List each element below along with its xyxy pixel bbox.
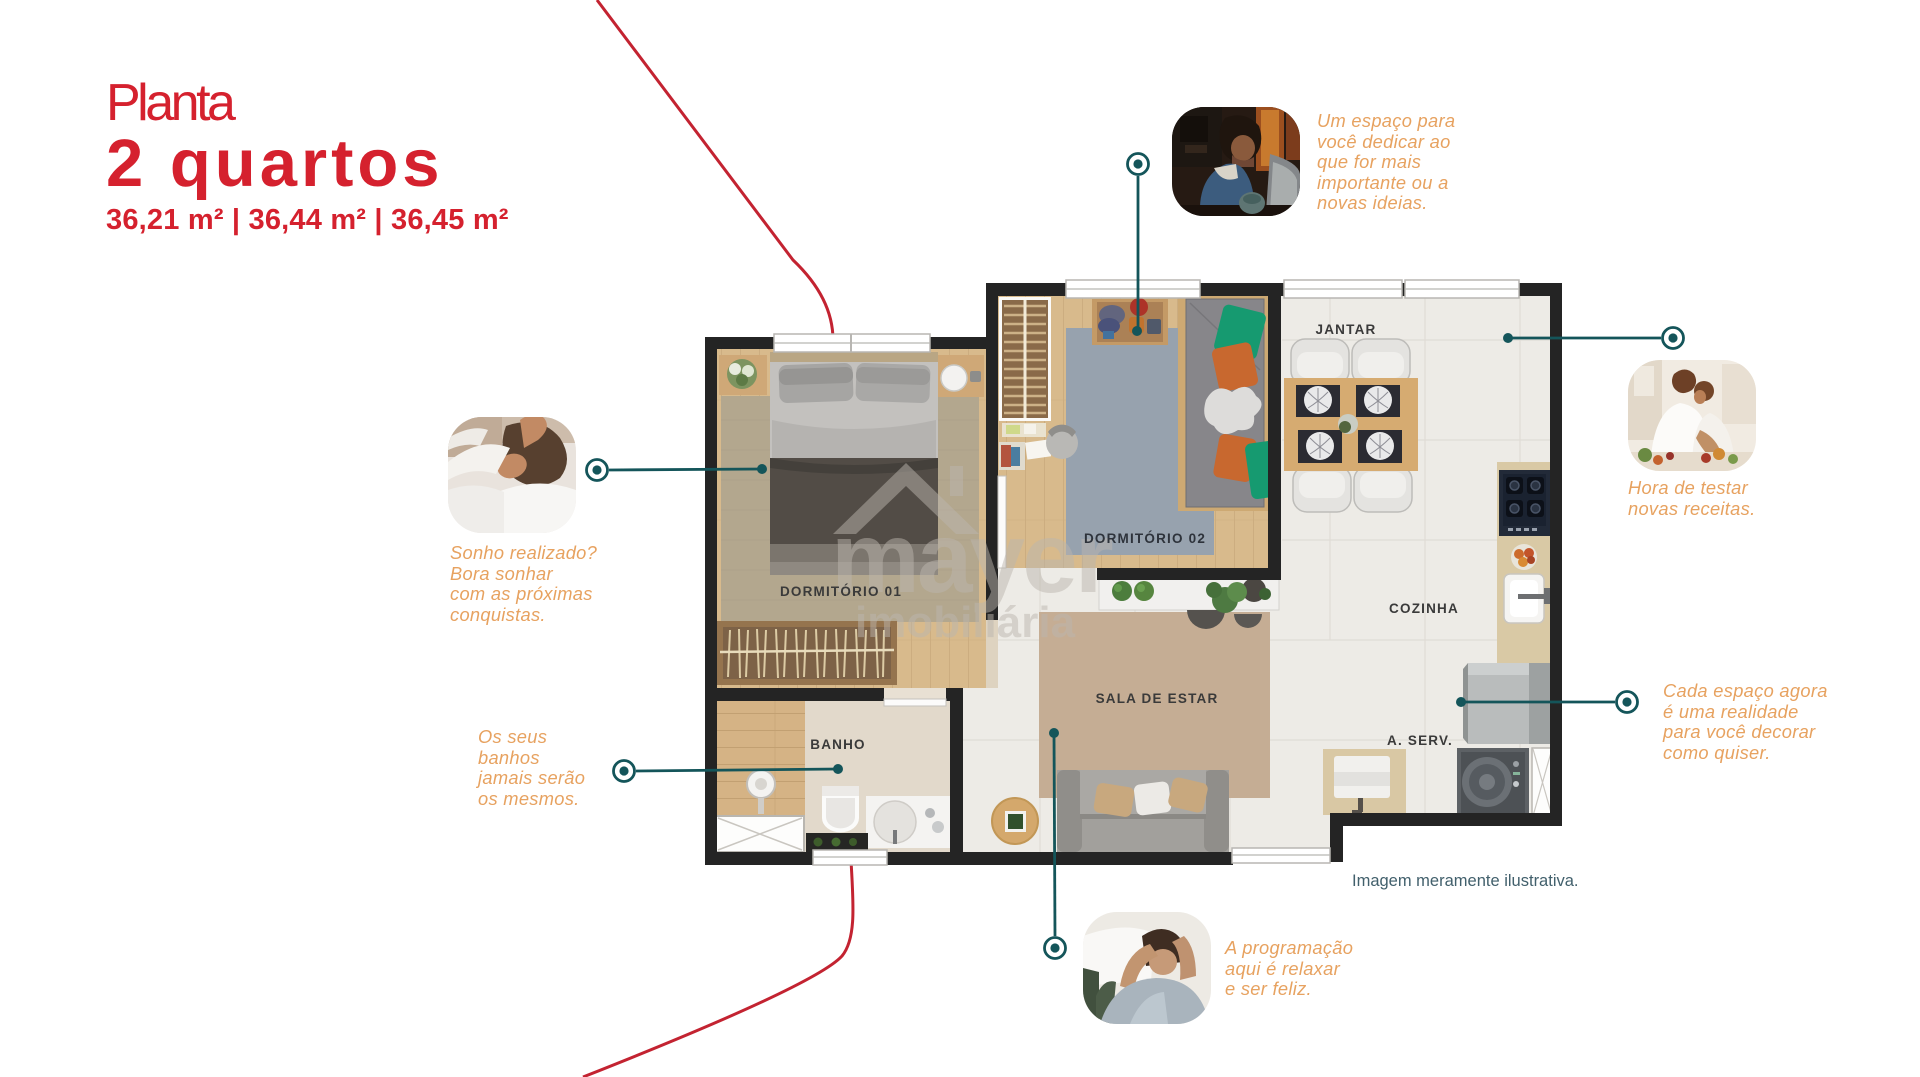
- svg-text:COZINHA: COZINHA: [1389, 601, 1459, 616]
- svg-text:DORMITÓRIO 02: DORMITÓRIO 02: [1084, 531, 1206, 546]
- svg-text:DORMITÓRIO 01: DORMITÓRIO 01: [780, 584, 902, 599]
- svg-text:imobiliária: imobiliária: [855, 598, 1076, 647]
- svg-text:JANTAR: JANTAR: [1316, 322, 1377, 337]
- svg-text:BANHO: BANHO: [810, 737, 866, 752]
- svg-text:SALA DE ESTAR: SALA DE ESTAR: [1096, 691, 1219, 706]
- svg-text:A. SERV.: A. SERV.: [1387, 733, 1453, 748]
